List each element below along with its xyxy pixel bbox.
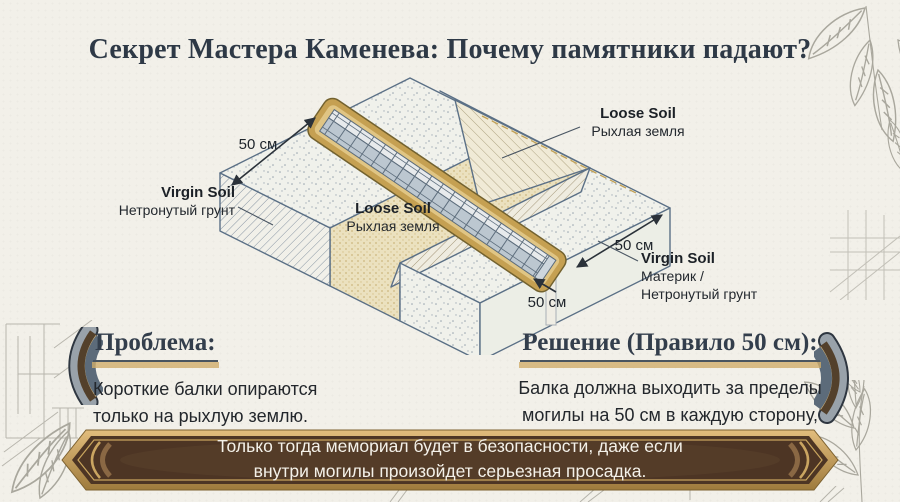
dim-label-left: 50 см xyxy=(239,136,278,153)
solution-heading: Решение (Правило 50 см): xyxy=(520,329,819,362)
problem-line: только на рыхлую землю. xyxy=(93,403,433,430)
banner-line: Только тогда мемориал будет в безопаснос… xyxy=(60,434,840,459)
problem-section: Проблема: Короткие балки опираются тольк… xyxy=(93,329,433,430)
problem-body: Короткие балки опираются только на рыхлу… xyxy=(93,376,433,430)
virgin-soil-right-label-ru2: Нетронутый грунт xyxy=(641,286,758,302)
solution-line: могилы на 50 см в каждую сторону, xyxy=(495,402,845,429)
solution-line: Балка должна выходить за пределы xyxy=(495,375,845,402)
virgin-soil-right-label-en: Virgin Soil xyxy=(641,250,715,267)
loose-soil-pit-label-ru: Рыхлая земля xyxy=(346,218,439,234)
virgin-soil-left-label-ru: Нетронутый грунт xyxy=(119,202,236,218)
problem-line: Короткие балки опираются xyxy=(93,376,433,403)
dim-label-bottom: 50 см xyxy=(528,294,567,311)
loose-soil-top-label-ru: Рыхлая земля xyxy=(591,123,684,139)
page-title: Секрет Мастера Каменева: Почему памятник… xyxy=(0,34,900,66)
banner-line: внутри могилы произойдет серьезная проса… xyxy=(60,459,840,484)
virgin-soil-right-label-ru1: Материк / xyxy=(641,268,704,284)
loose-soil-pit-label-en: Loose Soil xyxy=(355,200,431,217)
infographic-root: Секрет Мастера Каменева: Почему памятник… xyxy=(0,0,900,502)
banner-text: Только тогда мемориал будет в безопаснос… xyxy=(60,434,840,484)
loose-soil-top-label-en: Loose Soil xyxy=(600,105,676,122)
virgin-soil-left-label-en: Virgin Soil xyxy=(161,184,235,201)
problem-heading: Проблема: xyxy=(93,329,218,362)
grave-beam-diagram: 50 см Loose Soil Рыхлая земля Virgin Soi… xyxy=(110,65,890,355)
